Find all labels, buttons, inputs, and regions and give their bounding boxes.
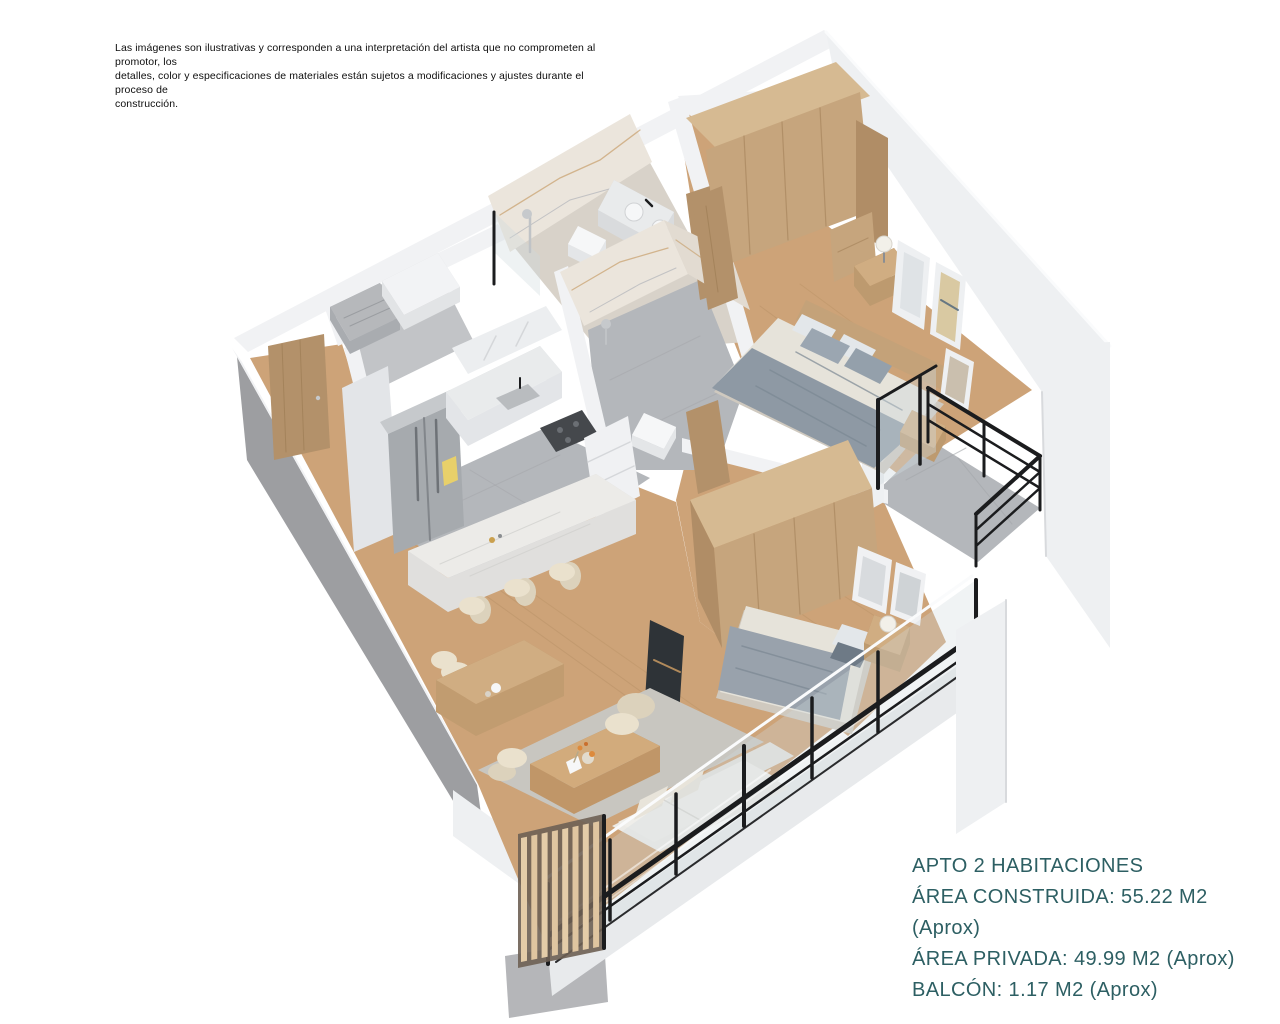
flower-deco [584,742,588,746]
wood-slat [542,832,548,958]
balcony-slat-screen [518,814,604,968]
specs-balcon: BALCÓN: 1.17 M2 (Aprox) [912,975,1280,1006]
burner-icon [557,427,563,433]
specs-area-privada: ÁREA PRIVADA: 49.99 M2 (Aprox) [912,944,1280,975]
island-bottle-deco [489,537,495,543]
page: Las imágenes son ilustrativas y correspo… [0,0,1280,1024]
dining-chair-seat [497,748,527,768]
wood-slat [593,821,599,948]
wood-slat [531,835,537,961]
east-wall [1040,342,1110,648]
entry-door [268,334,330,460]
apartment-specs: APTO 2 HABITACIONES ÁREA CONSTRUIDA: 55.… [912,851,1280,1006]
table-plate-deco [491,683,501,693]
burner-icon [565,437,571,443]
specs-area-construida: ÁREA CONSTRUIDA: 55.22 M2 (Aprox) [912,882,1280,944]
southeast-corner-pier [956,600,1006,834]
entrance [268,334,330,460]
armchair-seat [605,713,639,735]
disclaimer-line-2: detalles, color y especificaciones de ma… [115,69,620,97]
flower-deco [589,751,595,757]
bed2-lamp [880,616,896,632]
door-handle-icon [316,396,320,400]
flower-deco [578,746,583,751]
bath1-vessel-sink [625,203,643,221]
bar-stool-seat [504,579,530,597]
disclaimer-line-3: construcción. [115,97,620,111]
burner-icon [573,421,579,427]
wood-slat [583,824,589,951]
wood-slat [552,830,558,956]
disclaimer-text: Las imágenes son ilustrativas y correspo… [115,41,620,111]
island-bottle-deco [498,534,502,538]
wall-art-image [900,252,924,318]
shower-head-icon [601,319,611,329]
bar-stool-seat [459,597,485,615]
wood-slat [521,837,527,962]
slat-screen-back [518,814,604,968]
table-deco [485,691,491,697]
bar-stool-seat [549,563,575,581]
wood-slat [562,828,568,954]
specs-title: APTO 2 HABITACIONES [912,851,1280,882]
wood-slat [573,826,579,952]
disclaimer-line-1: Las imágenes son ilustrativas y correspo… [115,41,620,69]
shower-head-icon [522,209,532,219]
bed1-lamp [876,236,892,252]
